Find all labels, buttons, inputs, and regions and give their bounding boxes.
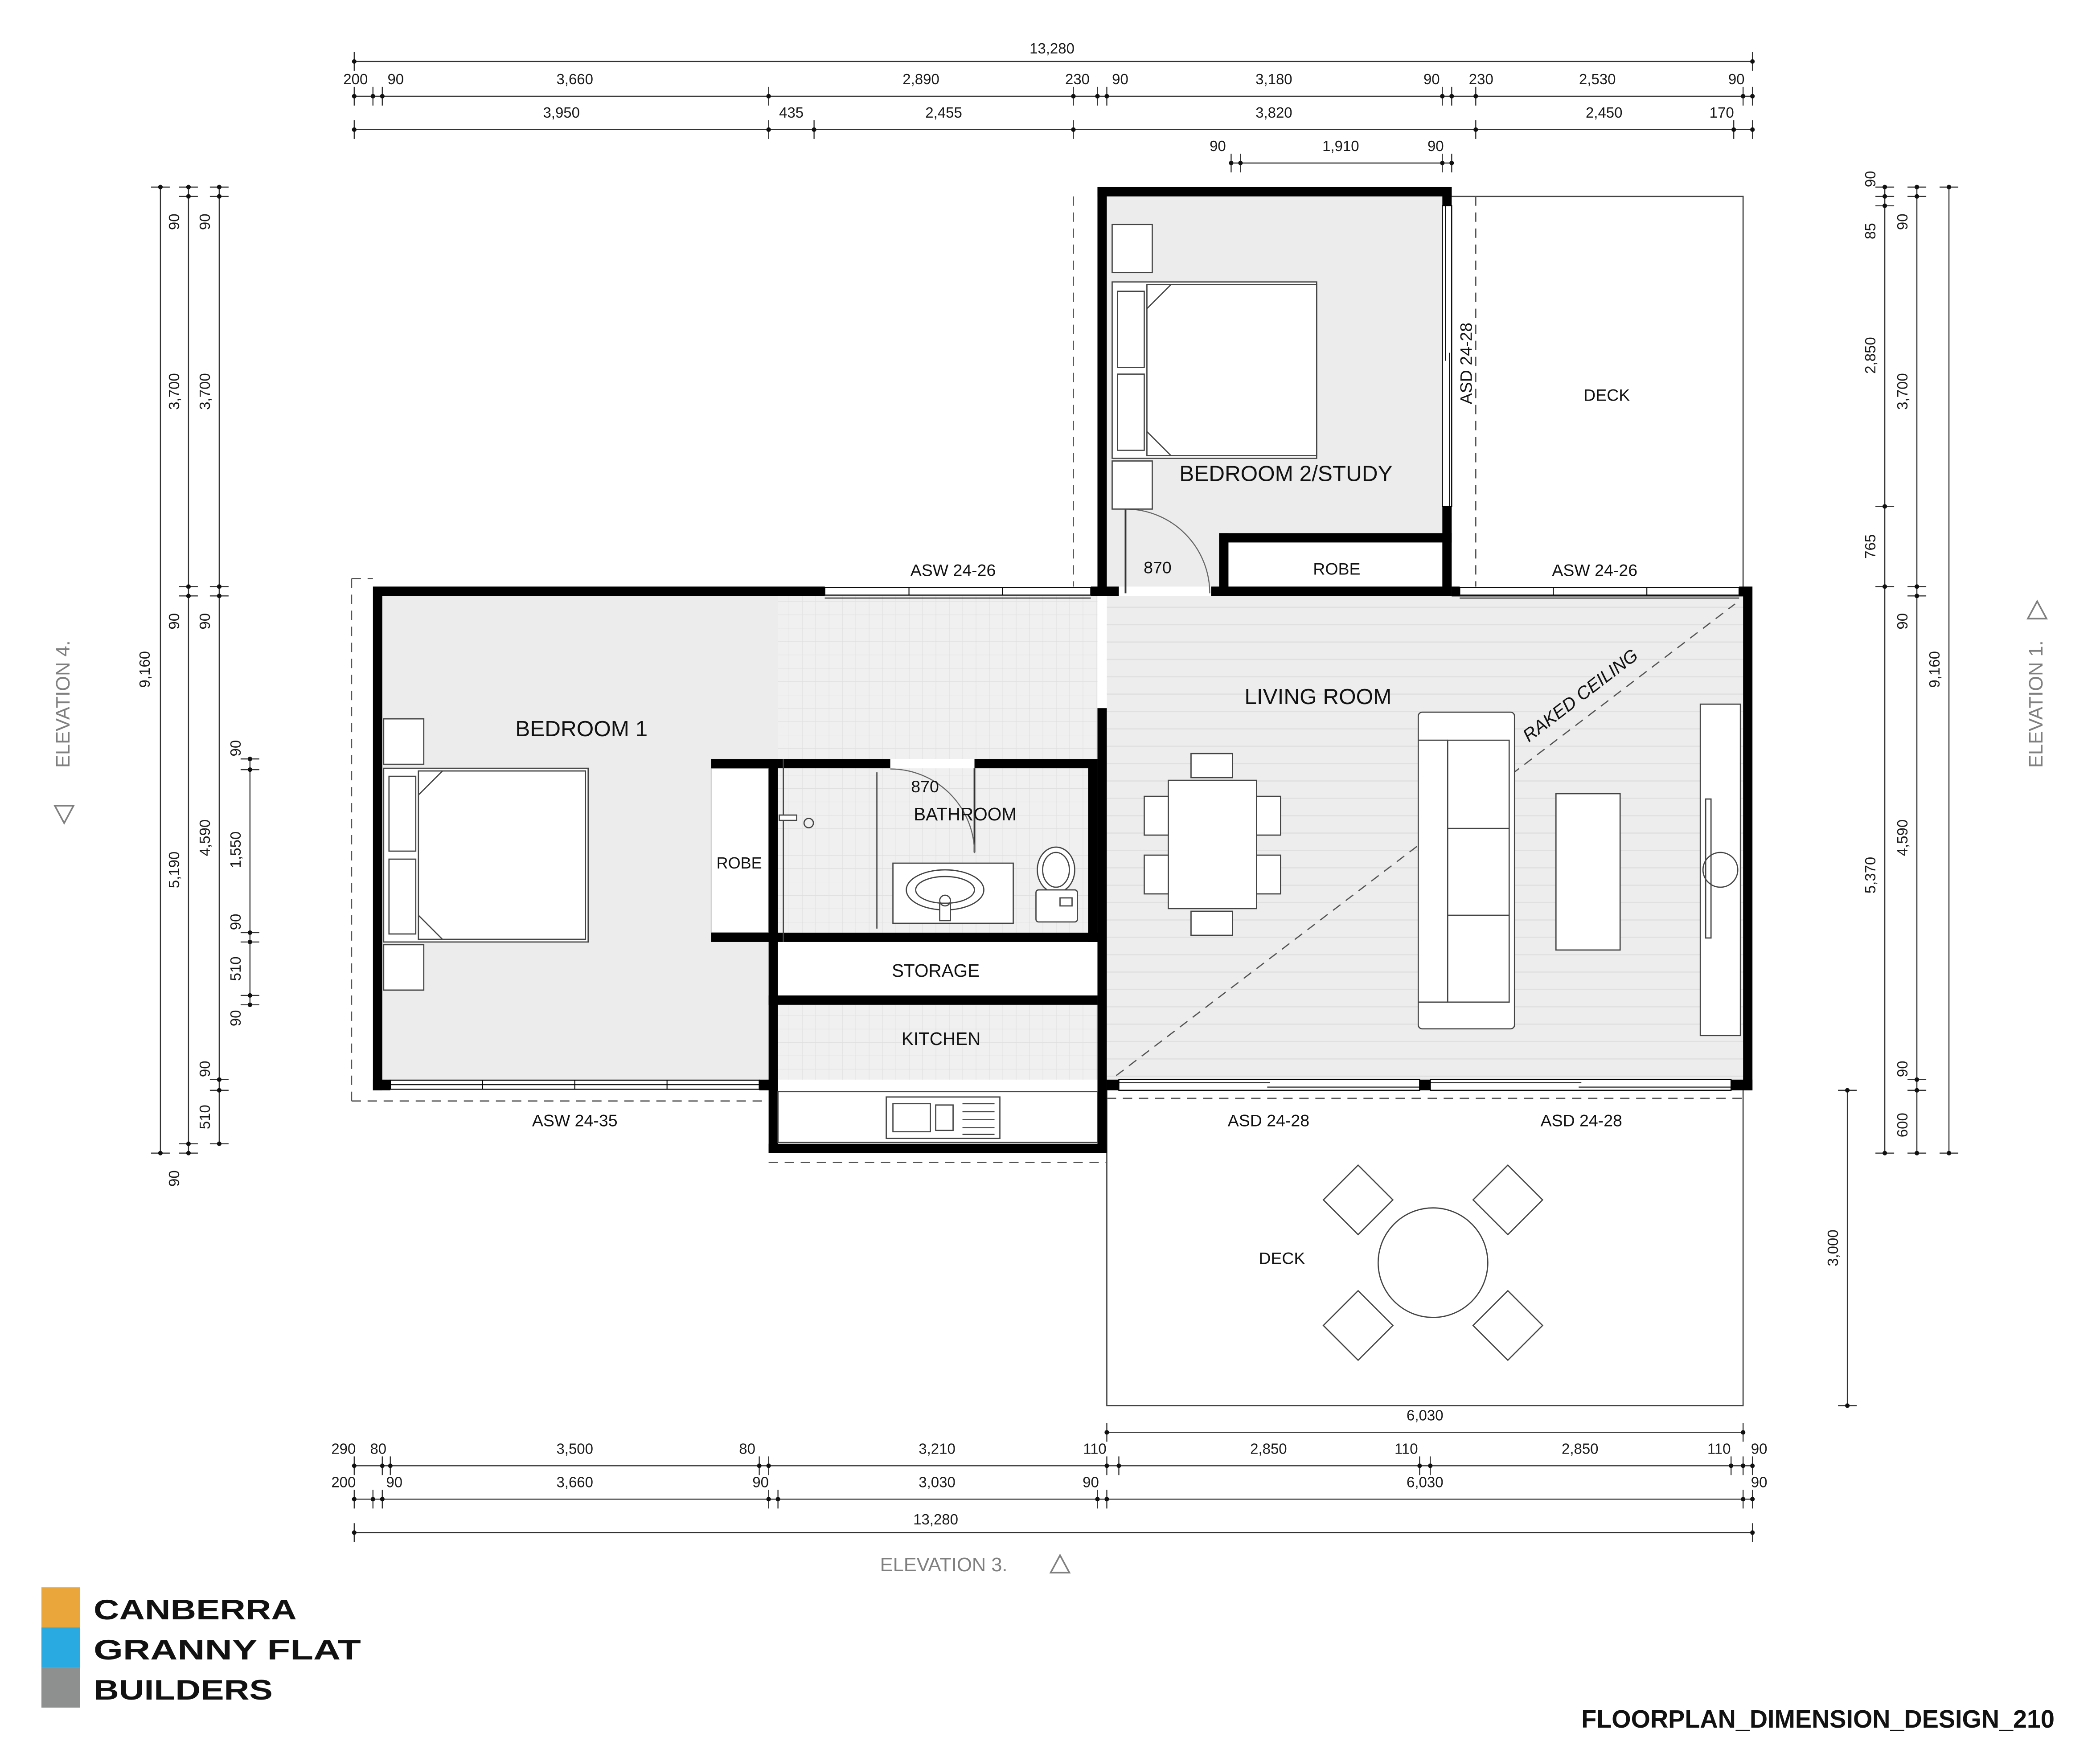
deck-chair [1473, 1291, 1542, 1360]
bedroom1-east-wall [769, 759, 778, 1090]
pillow [389, 776, 416, 851]
deck-bottom-label: DECK [1259, 1249, 1305, 1268]
nightstand [384, 719, 424, 764]
chair [1256, 796, 1280, 835]
south-wall-west-stub [373, 1080, 390, 1090]
dim-top: 13,280 200 90 3,660 2,890 230 90 3,180 9… [343, 40, 1752, 172]
elevation1-triangle-icon [2028, 601, 2047, 619]
asw-south-label: ASW 24-35 [532, 1111, 618, 1130]
dim-right: 3,000 90 85 2,850 765 5,370 90 3,700 90 … [1825, 171, 1958, 1405]
asd-south2-label: ASD 24-28 [1541, 1111, 1622, 1130]
chair [1191, 911, 1232, 935]
dim-label: 290 [331, 1440, 356, 1457]
dim-label: 600 [1894, 1113, 1911, 1137]
dim-label: 2,850 [1562, 1440, 1599, 1457]
dim-label: 90 [227, 1010, 244, 1026]
dim-label: 5,190 [166, 852, 182, 889]
logo-square-blue [41, 1627, 80, 1667]
dim-label: 3,660 [556, 71, 593, 87]
dim-label: 90 [1427, 138, 1444, 154]
dim-label: 510 [227, 956, 244, 981]
bathroom-north-wall-right [975, 759, 1088, 768]
dim-label: 90 [1728, 71, 1745, 87]
dim-label: 9,160 [1926, 651, 1943, 688]
dim-label: 90 [1894, 213, 1911, 230]
dim-label: 110 [1395, 1440, 1418, 1457]
robe2-front-wall [1219, 533, 1452, 542]
dim-label: 90 [752, 1474, 769, 1490]
dim-label: 4,590 [197, 819, 213, 856]
robe1-label: ROBE [717, 854, 762, 872]
dim-label: 2,450 [1586, 104, 1623, 121]
dim-label: 13,280 [913, 1511, 958, 1528]
bathroom-north-wall-left [778, 759, 890, 768]
dim-label: 90 [197, 613, 213, 630]
logo-line2: GRANNY FLAT [94, 1635, 361, 1666]
chair [1144, 855, 1168, 894]
deck-top-label: DECK [1583, 386, 1630, 405]
nightstand [1112, 461, 1152, 509]
robe1-top-wall [711, 759, 778, 768]
dim-label: 90 [1210, 138, 1226, 154]
dim-label: 110 [1707, 1440, 1731, 1457]
dim-label: 80 [739, 1440, 755, 1457]
dim-label: 2,455 [925, 104, 962, 121]
dim-label: 200 [343, 71, 368, 87]
asd-south1-label: ASD 24-28 [1228, 1111, 1309, 1130]
bedroom2-label: BEDROOM 2/STUDY [1179, 461, 1392, 486]
dim-label: 3,180 [1255, 71, 1292, 87]
dim-label: 2,530 [1579, 71, 1616, 87]
kitchen-label: KITCHEN [902, 1028, 981, 1049]
dim-label: 13,280 [1029, 40, 1075, 57]
dim-label: 3,000 [1825, 1229, 1841, 1266]
dim-label: 1,550 [227, 832, 244, 868]
asw-mid-left-label: ASW 24-26 [911, 561, 996, 579]
dim-label: 2,850 [1862, 337, 1879, 374]
living-south-post1 [1107, 1080, 1119, 1090]
mid-wall-seg4 [1211, 586, 1452, 596]
tv-unit [1700, 704, 1740, 1036]
logo-line3: BUILDERS [94, 1675, 273, 1706]
dim-label: 90 [227, 914, 244, 930]
dim-label: 90 [1112, 71, 1128, 87]
dim-label: 3,700 [197, 373, 213, 410]
dim-label: 3,700 [166, 373, 182, 410]
robe2-side-wall [1219, 533, 1228, 596]
logo-square-gray [41, 1667, 80, 1708]
dim-label: 90 [387, 71, 404, 87]
elevation4-label: ELEVATION 4. [53, 640, 74, 768]
dim-label: 90 [166, 1170, 182, 1187]
asw-mid-right-label: ASW 24-26 [1552, 561, 1637, 579]
deck-chair [1473, 1165, 1542, 1235]
dim-label: 230 [1065, 71, 1090, 87]
dim-label: 510 [197, 1105, 213, 1129]
chair [1144, 796, 1168, 835]
shower-head [779, 815, 797, 820]
dim-label: 80 [370, 1440, 386, 1457]
mattress [418, 771, 586, 939]
living-east-wall [1743, 596, 1752, 1090]
storage-south-wall [769, 995, 1098, 1005]
dim-label: 3,950 [543, 104, 580, 121]
robe2-label: ROBE [1313, 559, 1360, 578]
nightstand [384, 945, 424, 990]
mid-wall-seg6 [1739, 586, 1752, 596]
dim-left: 9,160 90 3,700 90 5,190 90 90 3,700 90 4… [136, 187, 259, 1187]
asw-mid-left-window [825, 588, 1091, 595]
dim-label: 90 [1423, 71, 1440, 87]
dim-label: 3,700 [1894, 373, 1911, 410]
dim-label: 170 [1710, 104, 1734, 121]
chair [1256, 855, 1280, 894]
robe1-interior [711, 768, 769, 933]
floorplan-page: 13,280 200 90 3,660 2,890 230 90 3,180 9… [0, 0, 2100, 1737]
pillow [389, 859, 416, 934]
asd-east-door [1442, 206, 1452, 507]
storage-north-wall [769, 933, 1098, 942]
bedroom2-east-wall-bottom [1442, 506, 1452, 596]
dim-label: 230 [1469, 71, 1493, 87]
dim-label: 765 [1862, 534, 1879, 559]
dim-label: 5,370 [1862, 857, 1879, 894]
dim-label: 90 [166, 213, 182, 230]
dim-label: 90 [1083, 1474, 1099, 1490]
hall-floor [778, 596, 1098, 759]
mid-wall-seg5 [1452, 586, 1460, 596]
dim-label: 435 [779, 104, 804, 121]
kitchen-living-wall [1097, 708, 1107, 1153]
storage-label: STORAGE [892, 960, 980, 981]
drawing-title: FLOORPLAN_DIMENSION_DESIGN_210 [1581, 1705, 2055, 1733]
elevation4-triangle-icon [55, 806, 74, 823]
bedroom2-north-wall [1097, 187, 1452, 197]
dim-label: 3,660 [556, 1474, 593, 1490]
coffee-table [1556, 794, 1620, 950]
vanity [893, 863, 1013, 923]
asd-south-door1 [1119, 1080, 1419, 1090]
pillow [1117, 291, 1144, 368]
mid-wall-west [373, 586, 825, 596]
sofa [1418, 712, 1514, 1029]
dim-label: 2,850 [1250, 1440, 1287, 1457]
bathroom-east-wall [1088, 759, 1097, 942]
pillow [1117, 374, 1144, 451]
bedroom2-east-wall-top [1442, 187, 1452, 206]
dim-label: 90 [197, 1061, 213, 1077]
mid-wall-seg2 [1091, 586, 1107, 596]
dim-label: 6,030 [1407, 1407, 1444, 1423]
deck-chair [1323, 1165, 1393, 1235]
dim-label: 90 [227, 740, 244, 757]
dim-label: 3,210 [919, 1440, 956, 1457]
dim-label: 90 [1894, 1061, 1911, 1077]
dim-label: 1,910 [1322, 138, 1359, 154]
dim-bottom: 6,030 290 80 3,500 80 3,210 110 2,850 11… [331, 1407, 1767, 1542]
living-room-label: LIVING ROOM [1244, 684, 1391, 709]
dim-label: 90 [1751, 1440, 1768, 1457]
dim-label: 85 [1862, 223, 1879, 239]
dim-label: 90 [386, 1474, 402, 1490]
kitchen-bay-south-wall [769, 1144, 1107, 1153]
mid-wall-seg3 [1107, 586, 1119, 596]
dim-label: 3,820 [1255, 104, 1292, 121]
living-south-post2 [1419, 1080, 1430, 1090]
asw-mid-right-window [1460, 588, 1739, 595]
round-table [1378, 1208, 1488, 1318]
dim-label: 9,160 [136, 651, 153, 688]
dim-label: 90 [166, 613, 182, 630]
tv-screen [1706, 799, 1711, 938]
nightstand [1112, 225, 1152, 273]
dim-label: 200 [331, 1474, 356, 1490]
bathroom-label: BATHROOM [914, 804, 1017, 824]
robe1-bottom-wall [711, 933, 778, 942]
mattress [1147, 285, 1317, 456]
dim-label: 6,030 [1407, 1474, 1444, 1490]
logo: CANBERRA GRANNY FLAT BUILDERS [41, 1587, 361, 1708]
dim-label: 3,500 [556, 1440, 593, 1457]
dim-label: 2,890 [902, 71, 939, 87]
logo-line1: CANBERRA [94, 1594, 297, 1626]
asd-east-label: ASD 24-28 [1456, 323, 1475, 404]
dim-label: 90 [1862, 171, 1879, 187]
dim-label: 90 [1894, 613, 1911, 630]
bedroom2-west-wall [1097, 187, 1107, 596]
west-wall [373, 596, 382, 1090]
asd-south-door2 [1430, 1080, 1731, 1090]
door-bed2-label: 870 [1144, 558, 1172, 577]
elevation1-label: ELEVATION 1. [2026, 640, 2047, 768]
outdoor-table-set [1323, 1165, 1542, 1360]
bedroom1-label: BEDROOM 1 [515, 717, 648, 741]
door-bath-label: 870 [911, 777, 939, 796]
floorplan-drawing: 13,280 200 90 3,660 2,890 230 90 3,180 9… [0, 0, 2100, 1737]
dim-label: 110 [1083, 1440, 1107, 1457]
dim-label: 3,030 [919, 1474, 956, 1490]
elevation3-label: ELEVATION 3. [880, 1554, 1008, 1576]
dim-label: 90 [197, 213, 213, 230]
elevation3-triangle-icon [1050, 1555, 1069, 1573]
kitchen-bay-west-wall [769, 1080, 778, 1153]
chair [1191, 754, 1232, 778]
dining-table [1168, 780, 1256, 909]
dim-label: 4,590 [1894, 819, 1911, 856]
logo-square-orange [41, 1587, 80, 1627]
deck-chair [1323, 1291, 1393, 1360]
dim-label: 90 [1751, 1474, 1768, 1490]
